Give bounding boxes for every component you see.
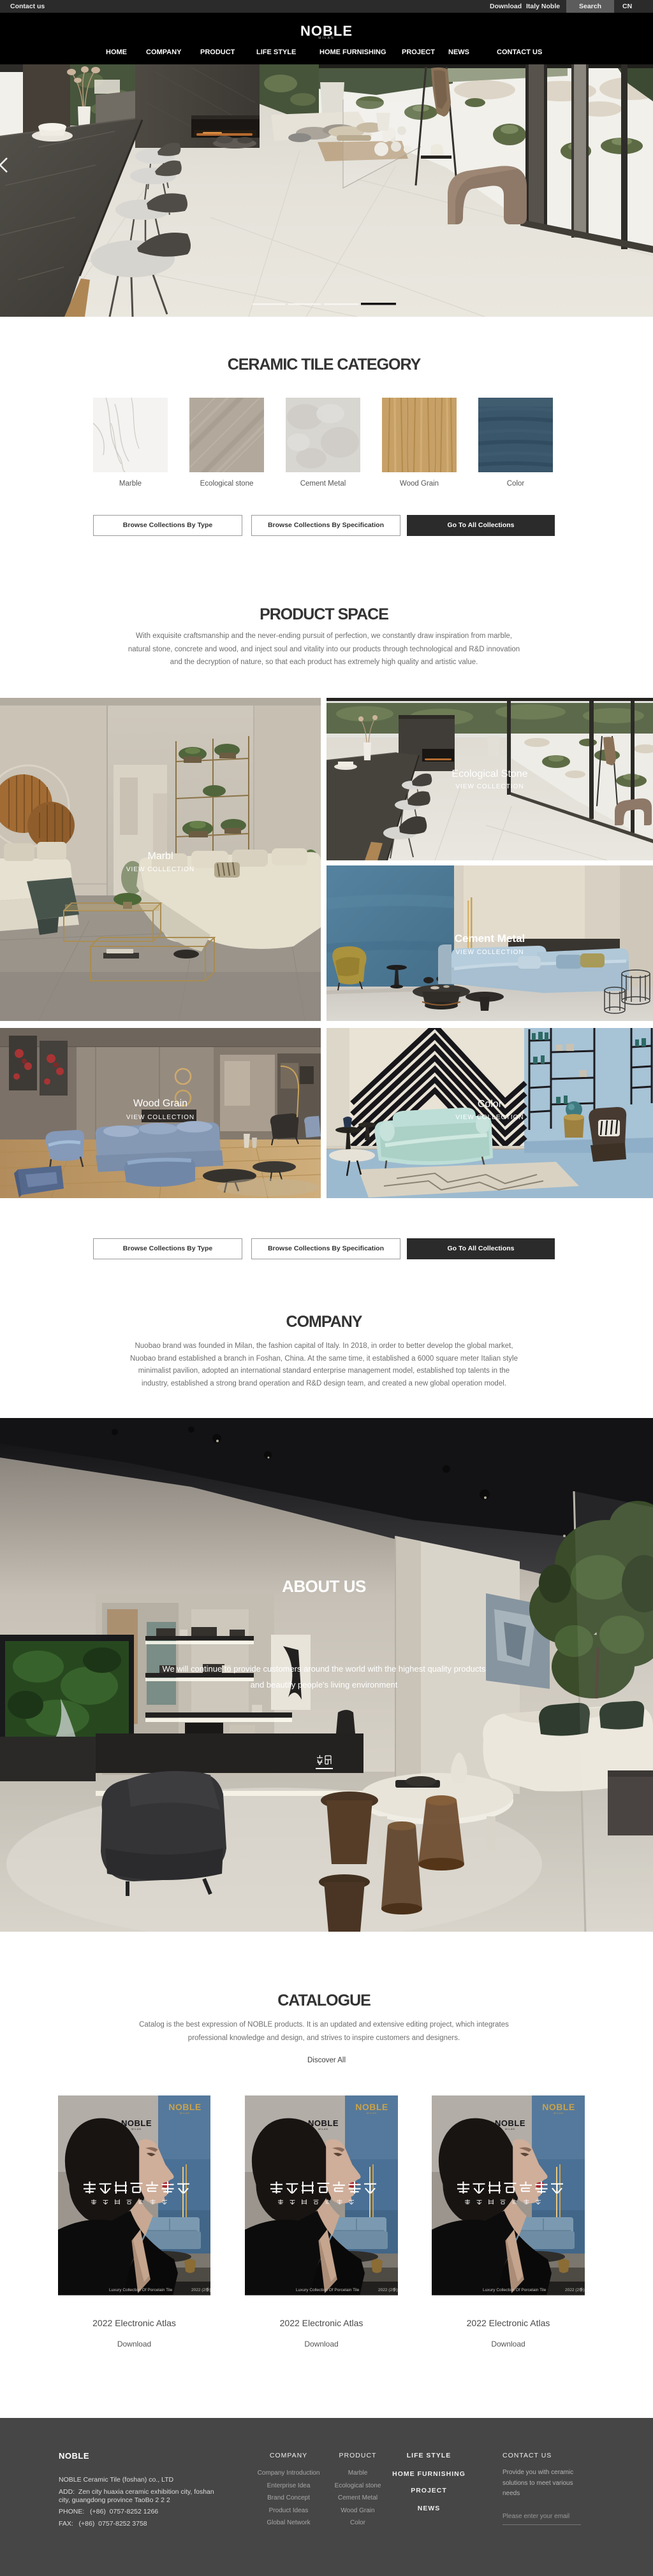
svg-text:Luxury Collection Of Porcelain: Luxury Collection Of Porcelain Tile <box>483 2288 547 2292</box>
svg-text:NOBLE: NOBLE <box>542 2102 575 2112</box>
svg-text:Luxury Collection Of Porcelain: Luxury Collection Of Porcelain Tile <box>296 2288 360 2292</box>
svg-text:2022 (2季): 2022 (2季) <box>378 2287 398 2292</box>
svg-text:MILAN: MILAN <box>131 2128 142 2131</box>
svg-text:NOBLE: NOBLE <box>355 2102 388 2112</box>
svg-text:MILAN: MILAN <box>554 2112 564 2115</box>
svg-text:2022 (2季): 2022 (2季) <box>191 2287 210 2292</box>
svg-text:Luxury Collection Of Porcelain: Luxury Collection Of Porcelain Tile <box>109 2288 173 2292</box>
svg-text:MILAN: MILAN <box>180 2112 190 2115</box>
svg-text:NOBLE: NOBLE <box>168 2102 202 2112</box>
svg-text:MILAN: MILAN <box>367 2112 377 2115</box>
svg-text:MILAN: MILAN <box>505 2128 515 2131</box>
svg-text:MILAN: MILAN <box>318 2128 328 2131</box>
svg-text:2022 (2季): 2022 (2季) <box>565 2287 585 2292</box>
